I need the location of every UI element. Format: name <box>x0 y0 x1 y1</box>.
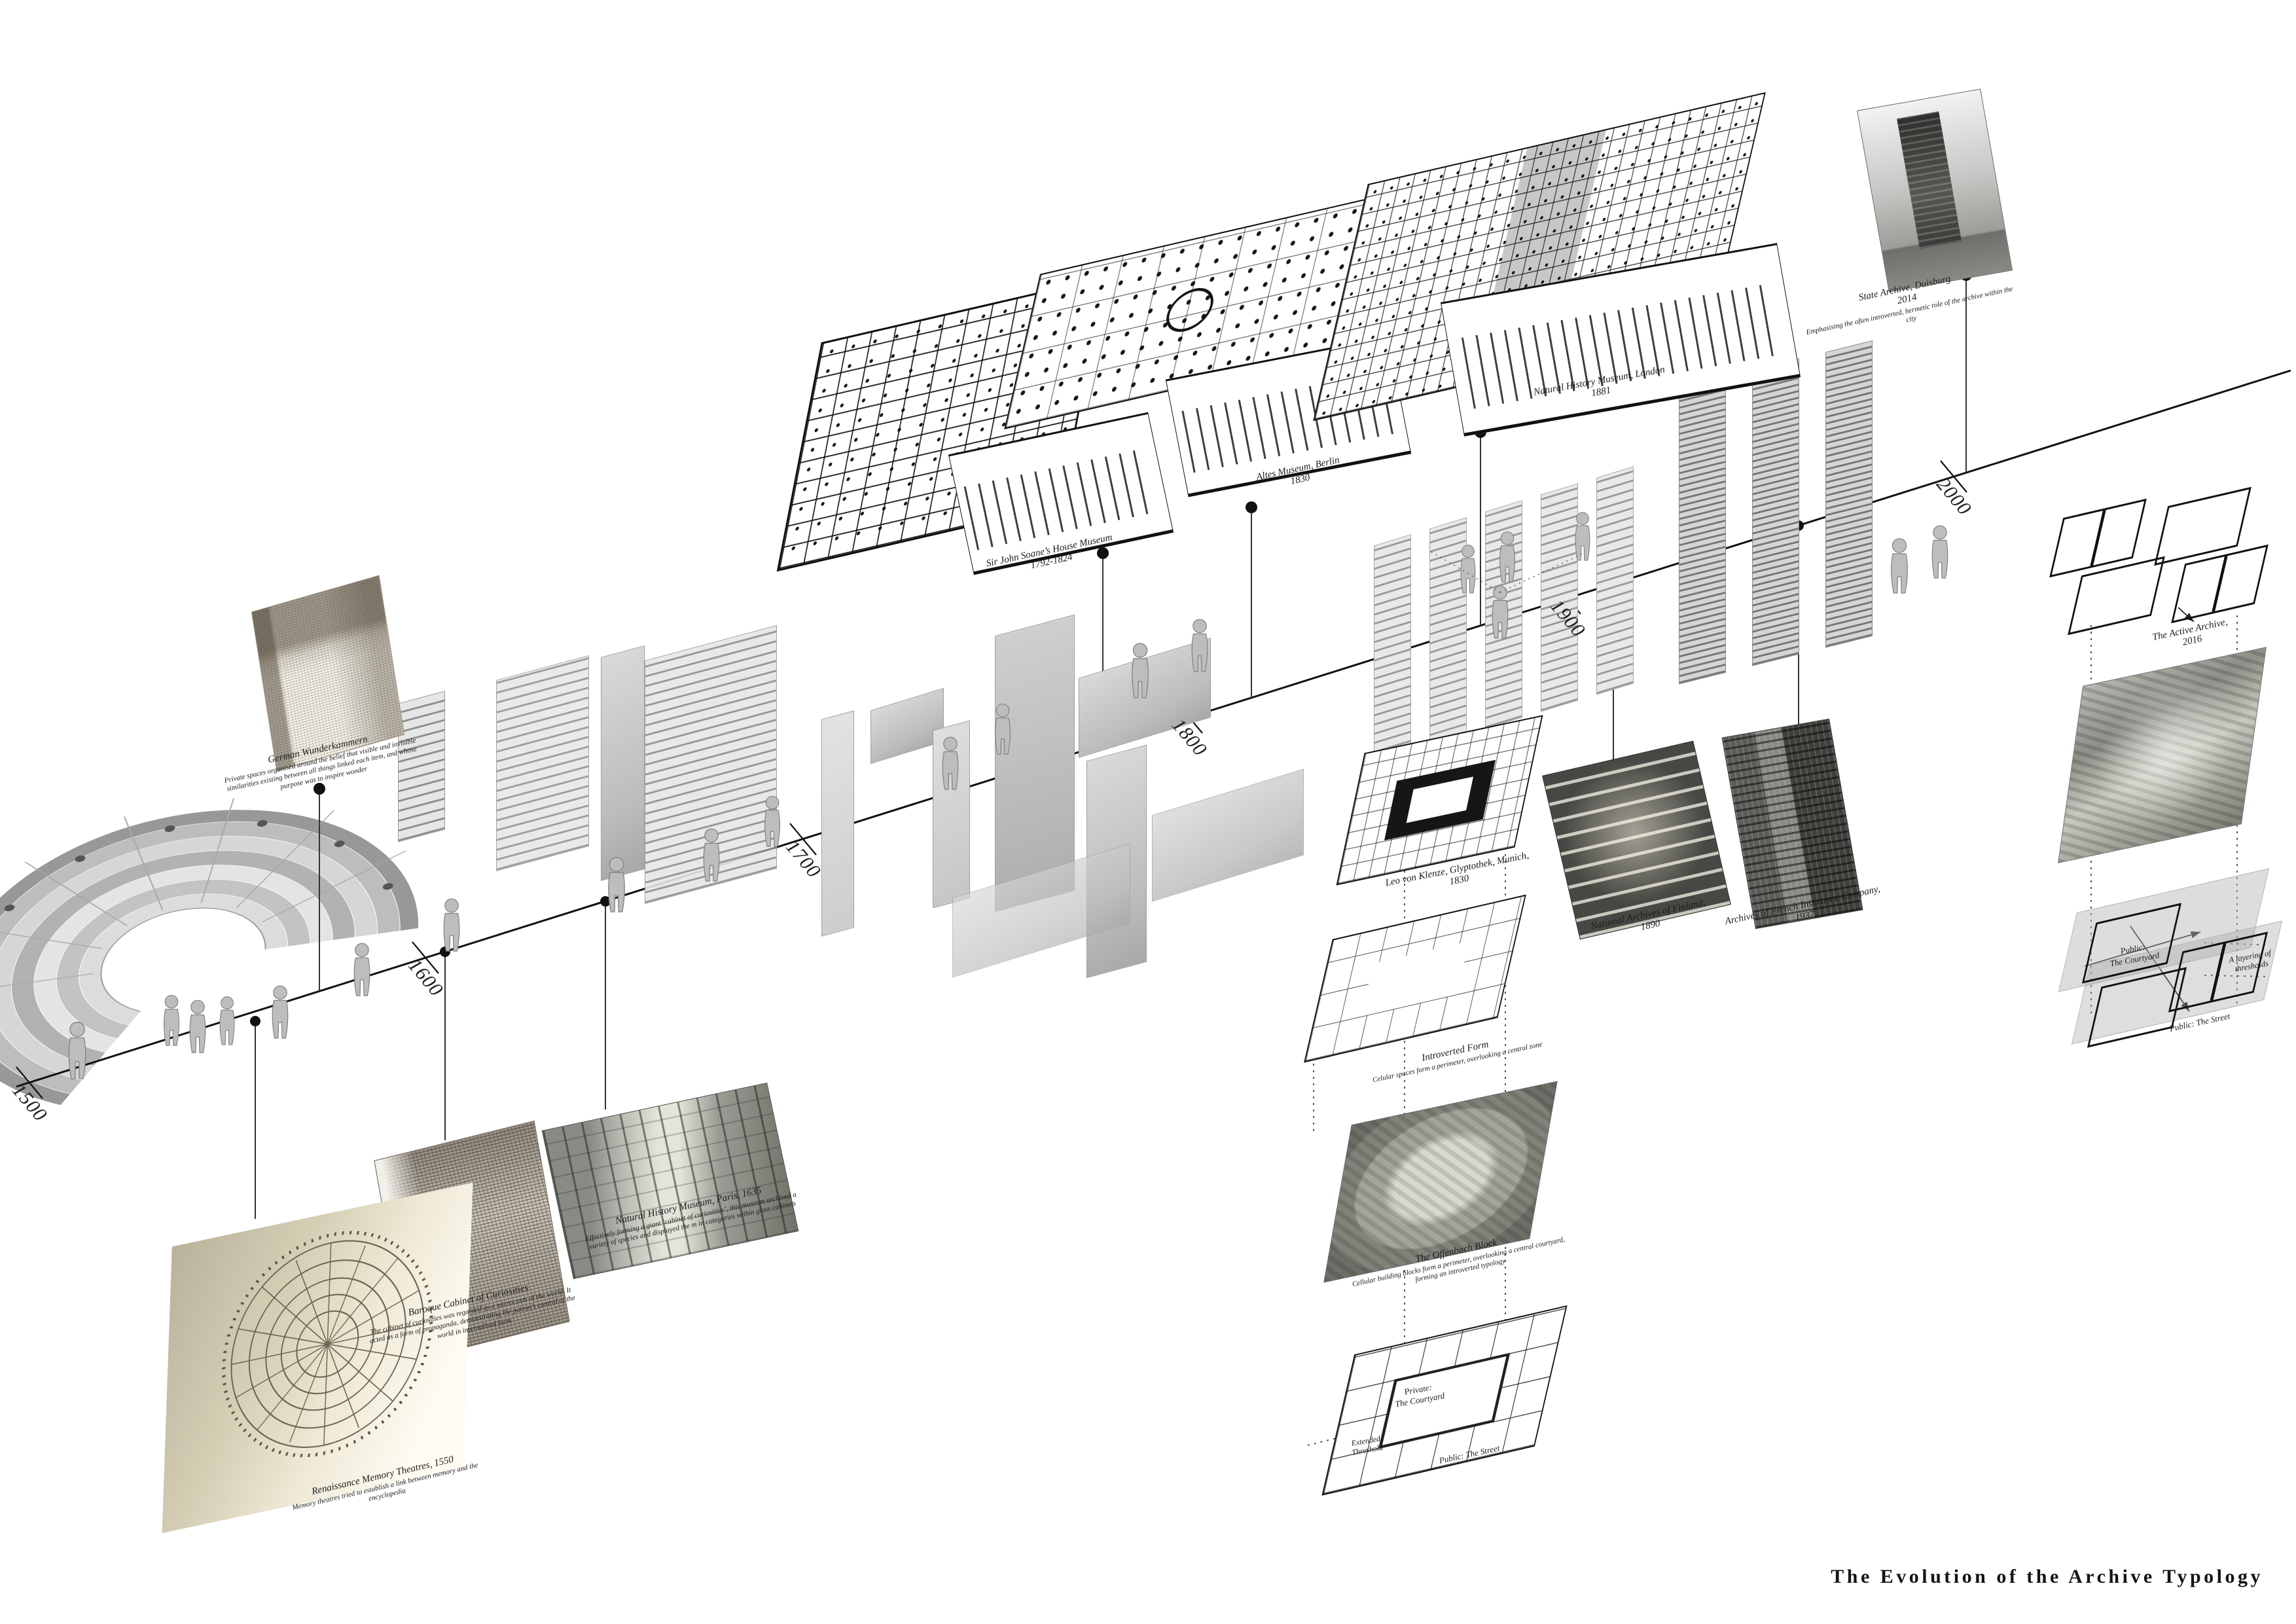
shelf-structure <box>645 625 777 904</box>
shelf-column <box>1825 340 1873 648</box>
shelf-structure <box>398 691 445 842</box>
poster-title: The Evolution of the Archive Typology <box>1831 1566 2263 1588</box>
shelf-column <box>1679 377 1726 685</box>
wall-panel <box>933 720 970 908</box>
year-marker-2000: 2000 <box>1920 460 1987 534</box>
shelf-block <box>1374 534 1411 763</box>
year-marker-1500: 1500 <box>0 1066 63 1140</box>
shelf-block <box>1485 500 1522 729</box>
wall-structure <box>601 645 645 881</box>
rotunda-symbol <box>1162 283 1218 336</box>
poster-canvas: 1500 1600 1700 1800 1900 2000 Renaissanc… <box>0 0 2296 1624</box>
archive-aisles-drawing <box>1365 460 1655 765</box>
shelf-column <box>1752 359 1799 666</box>
shelf-structure <box>496 655 589 871</box>
active-archive-courtyard-view <box>2058 647 2267 863</box>
concrete-wall <box>1152 769 1304 902</box>
year-marker-1600: 1600 <box>391 941 459 1015</box>
duisburg-archive-photo <box>1857 88 2013 292</box>
wall-panel <box>821 710 854 936</box>
shelf-block <box>1596 466 1634 695</box>
archive-tower-silhouette <box>1897 112 1962 249</box>
shelf-block <box>1429 517 1467 746</box>
